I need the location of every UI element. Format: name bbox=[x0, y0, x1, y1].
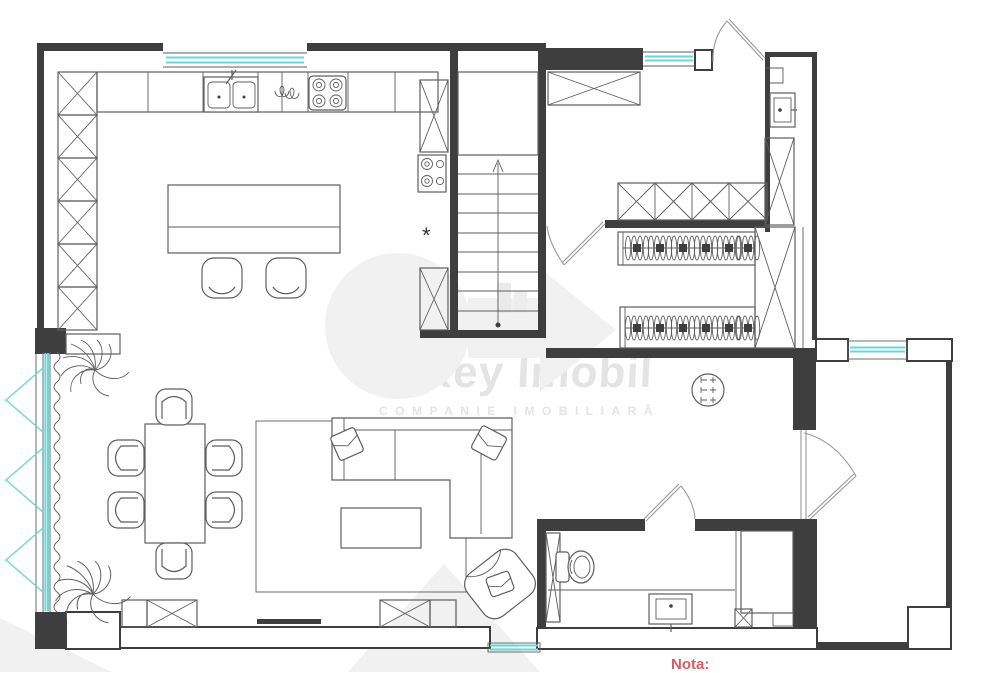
shower bbox=[735, 531, 793, 627]
dining-chair bbox=[108, 440, 144, 476]
bathroom bbox=[546, 531, 793, 632]
clothes-rail-top bbox=[618, 232, 760, 265]
wardrobe-shelves bbox=[618, 183, 767, 220]
bedroom-door bbox=[801, 430, 856, 519]
dining-area bbox=[56, 340, 242, 623]
utility-room bbox=[765, 68, 803, 348]
living-window-wall bbox=[6, 352, 60, 612]
doors bbox=[547, 19, 856, 521]
curtain bbox=[54, 352, 60, 612]
closet-tall-cabinet bbox=[755, 227, 795, 348]
closet-door bbox=[547, 222, 605, 265]
dining-chair bbox=[156, 389, 192, 425]
kitchen-island bbox=[168, 185, 340, 298]
bar-stool bbox=[266, 258, 306, 298]
kitchen-window bbox=[163, 53, 307, 67]
dining-table bbox=[145, 424, 205, 543]
staircase bbox=[458, 72, 538, 328]
entrance-door bbox=[713, 19, 765, 62]
toilet bbox=[556, 551, 594, 583]
hob-icon bbox=[309, 76, 346, 110]
decor-plant-icon bbox=[275, 86, 299, 98]
bar-stool bbox=[202, 258, 242, 298]
floor-plan-page: O’Key Imobil COMPANIE IMOBILIARĂ bbox=[0, 0, 981, 672]
dining-chair bbox=[108, 492, 144, 528]
hallway-cabinet bbox=[548, 72, 640, 105]
tv bbox=[257, 619, 321, 624]
dining-chair bbox=[206, 492, 242, 528]
dining-chair bbox=[156, 543, 192, 579]
clothes-rail-bottom bbox=[620, 307, 760, 348]
kitchen-sink bbox=[204, 70, 258, 112]
plant bbox=[61, 340, 129, 396]
bedroom-window bbox=[848, 341, 907, 359]
watermark-logo bbox=[0, 253, 616, 672]
vanity-sink bbox=[649, 594, 692, 632]
structural-column bbox=[908, 607, 951, 649]
boiler-asterisk: * bbox=[422, 223, 431, 248]
utility-sink bbox=[770, 93, 797, 127]
tall-cabinet-column bbox=[58, 72, 97, 330]
floor-plan-drawing: * bbox=[0, 0, 981, 672]
round-table bbox=[692, 374, 724, 406]
bathroom-door bbox=[644, 484, 695, 521]
hallway-window bbox=[643, 52, 695, 66]
dining-chair bbox=[206, 440, 242, 476]
coffee-table bbox=[341, 508, 421, 548]
note-label: Nota: bbox=[671, 656, 709, 673]
living-room bbox=[122, 418, 541, 627]
